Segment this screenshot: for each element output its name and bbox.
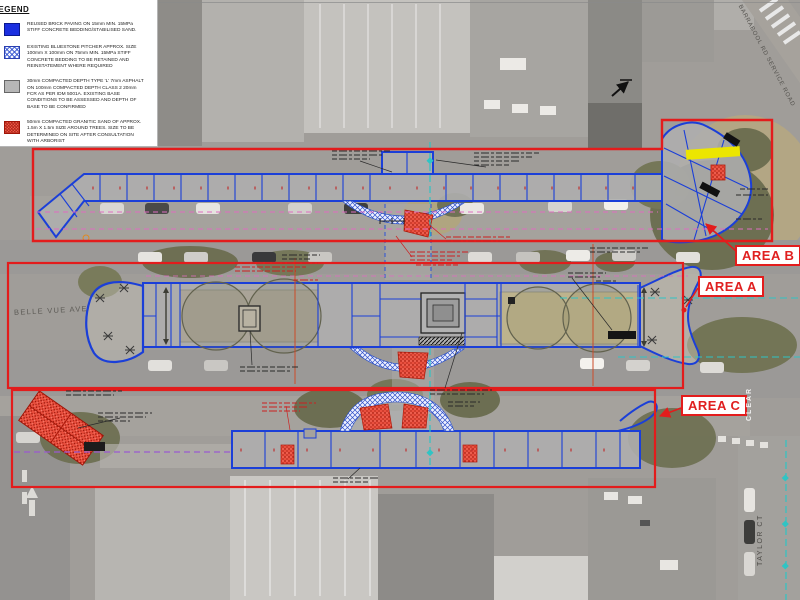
bin bbox=[508, 297, 515, 304]
street-label-taylor-ct: TAYLOR CT bbox=[757, 514, 764, 566]
legend-item-text: 50mm COMPACTED GRANITIC SAND OF APPROX. … bbox=[27, 120, 145, 145]
granitic-sand-patch bbox=[711, 165, 725, 180]
tree-canopy-outline bbox=[507, 287, 569, 349]
granitic-sand-patch bbox=[398, 352, 428, 379]
site-plan-canvas: LEGEND REUSED BRICK PAVING ON 15mm MIN. … bbox=[0, 0, 800, 600]
bench bbox=[84, 442, 105, 451]
granitic-sand-patch bbox=[402, 404, 428, 428]
road-marking-clear: CLEAR bbox=[746, 387, 753, 421]
area-label-b: AREA B bbox=[735, 245, 800, 266]
buildings-bottom bbox=[95, 476, 716, 600]
legend-title: LEGEND bbox=[0, 5, 153, 14]
legend-item-text: EXISTING BLUESTONE PITCHER APPROX. SIZE … bbox=[27, 45, 145, 70]
seat-hatch bbox=[419, 337, 465, 345]
legend-item-text: REUSED BRICK PAVING ON 15mm MIN. 15MPa S… bbox=[27, 22, 145, 35]
tree-canopy-outline bbox=[563, 284, 631, 352]
area-label-c: AREA C bbox=[681, 395, 747, 416]
legend-item-granitic-sand: 50mm COMPACTED GRANITIC SAND OF APPROX. … bbox=[4, 120, 153, 145]
asphalt-swatch bbox=[4, 80, 20, 93]
legend-item-asphalt: 30mm COMPACTED DEPTH TYPE 'L' 7mm ASPHAL… bbox=[4, 79, 153, 111]
bluestone-hatch-swatch bbox=[4, 46, 20, 59]
bench bbox=[608, 331, 636, 339]
area-label-a: AREA A bbox=[698, 276, 764, 297]
granitic-sand-swatch bbox=[4, 121, 20, 134]
legend-panel: LEGEND REUSED BRICK PAVING ON 15mm MIN. … bbox=[0, 0, 158, 147]
legend-item-text: 30mm COMPACTED DEPTH TYPE 'L' 7mm ASPHAL… bbox=[27, 79, 145, 111]
granitic-sand-cell bbox=[281, 445, 294, 464]
legend-item-reused-brick: REUSED BRICK PAVING ON 15mm MIN. 15MPa S… bbox=[4, 22, 153, 36]
legend-item-bluestone: EXISTING BLUESTONE PITCHER APPROX. SIZE … bbox=[4, 45, 153, 70]
granitic-sand-patch bbox=[360, 404, 392, 430]
brick-paving-swatch bbox=[4, 23, 20, 36]
granitic-sand-cell bbox=[463, 445, 477, 462]
